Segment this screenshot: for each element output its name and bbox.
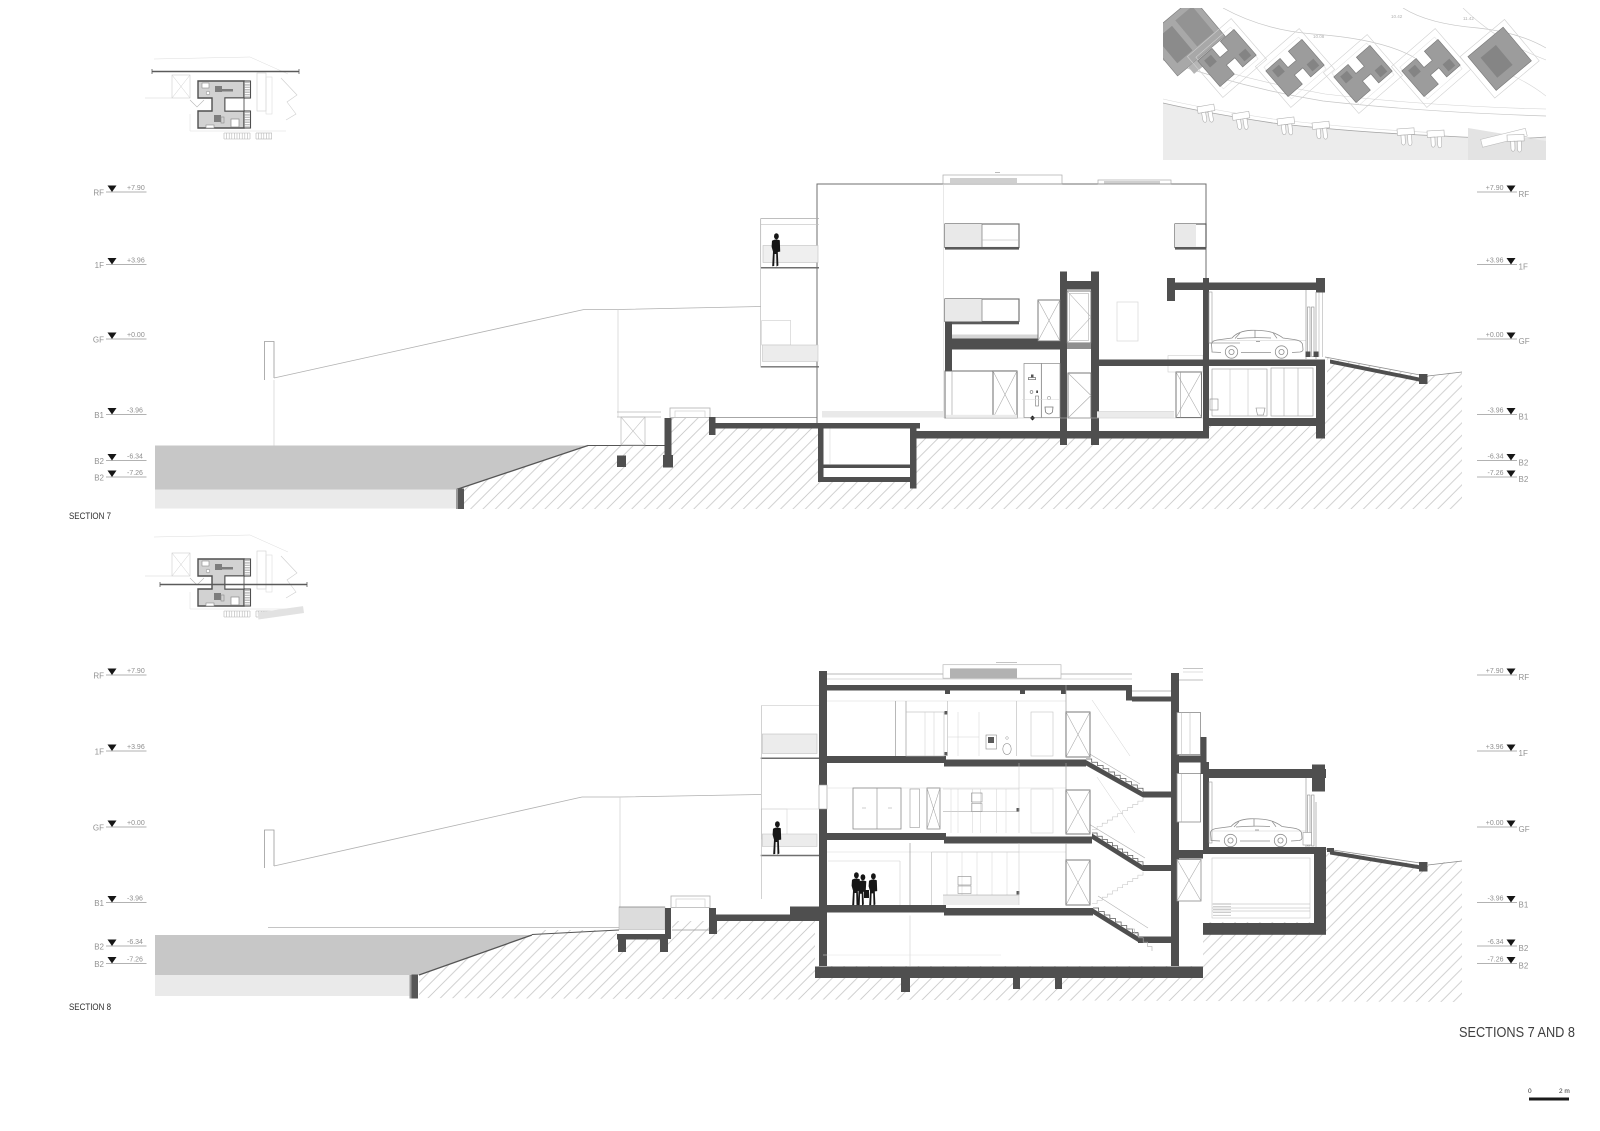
- svg-text:+3.96: +3.96: [127, 744, 145, 751]
- svg-text:GF: GF: [93, 824, 104, 833]
- svg-text:+0.00: +0.00: [1486, 820, 1504, 827]
- svg-text:GF: GF: [93, 336, 104, 345]
- svg-text:10.42: 10.42: [1391, 14, 1403, 19]
- svg-text:-6.34: -6.34: [1488, 939, 1504, 946]
- svg-text:+7.90: +7.90: [127, 668, 145, 675]
- svg-text:B2: B2: [1519, 475, 1529, 484]
- svg-text:B2: B2: [94, 943, 104, 952]
- svg-text:-3.96: -3.96: [127, 408, 143, 415]
- svg-text:+3.96: +3.96: [127, 258, 145, 265]
- svg-text:B1: B1: [94, 411, 104, 420]
- svg-text:-7.26: -7.26: [127, 957, 143, 964]
- svg-text:0: 0: [1528, 1088, 1532, 1095]
- svg-text:+0.00: +0.00: [1486, 332, 1504, 339]
- svg-text:RF: RF: [93, 189, 104, 198]
- svg-text:B2: B2: [94, 960, 104, 969]
- svg-text:-3.96: -3.96: [1488, 408, 1504, 415]
- svg-text:B2: B2: [1519, 962, 1529, 971]
- svg-text:RF: RF: [1519, 673, 1530, 682]
- svg-text:GF: GF: [1519, 337, 1530, 346]
- svg-text:1F: 1F: [95, 261, 104, 270]
- svg-text:-7.26: -7.26: [1488, 470, 1504, 477]
- svg-text:B2: B2: [94, 474, 104, 483]
- svg-text:-3.96: -3.96: [1488, 896, 1504, 903]
- svg-text:-6.34: -6.34: [127, 939, 143, 946]
- svg-text:SECTION 7: SECTION 7: [69, 511, 111, 521]
- svg-text:+7.90: +7.90: [1486, 668, 1504, 675]
- svg-text:RF: RF: [93, 672, 104, 681]
- svg-text:-7.26: -7.26: [127, 470, 143, 477]
- svg-text:RF: RF: [1519, 190, 1530, 199]
- svg-text:1F: 1F: [1519, 749, 1528, 758]
- svg-text:+3.96: +3.96: [1486, 258, 1504, 265]
- svg-text:+7.90: +7.90: [127, 185, 145, 192]
- svg-text:B1: B1: [1519, 901, 1529, 910]
- svg-text:SECTION 8: SECTION 8: [69, 1002, 111, 1012]
- svg-text:11.42: 11.42: [1463, 16, 1474, 21]
- svg-text:2 m: 2 m: [1559, 1088, 1570, 1095]
- svg-text:-3.96: -3.96: [127, 896, 143, 903]
- svg-text:B2: B2: [1519, 459, 1529, 468]
- svg-text:GF: GF: [1519, 825, 1530, 834]
- svg-text:-6.34: -6.34: [1488, 454, 1504, 461]
- svg-text:SECTIONS 7 AND 8: SECTIONS 7 AND 8: [1459, 1024, 1575, 1041]
- svg-text:-7.26: -7.26: [1488, 957, 1504, 964]
- svg-text:10.08: 10.08: [1313, 34, 1325, 39]
- svg-text:1F: 1F: [1519, 263, 1528, 272]
- svg-text:+0.00: +0.00: [127, 820, 145, 827]
- svg-text:B2: B2: [1519, 944, 1529, 953]
- svg-text:B1: B1: [94, 899, 104, 908]
- svg-text:B1: B1: [1519, 413, 1529, 422]
- svg-text:+0.00: +0.00: [127, 332, 145, 339]
- svg-text:-6.34: -6.34: [127, 454, 143, 461]
- svg-text:1F: 1F: [95, 748, 104, 757]
- svg-text:+3.96: +3.96: [1486, 744, 1504, 751]
- svg-text:B2: B2: [94, 457, 104, 466]
- svg-text:+7.90: +7.90: [1486, 185, 1504, 192]
